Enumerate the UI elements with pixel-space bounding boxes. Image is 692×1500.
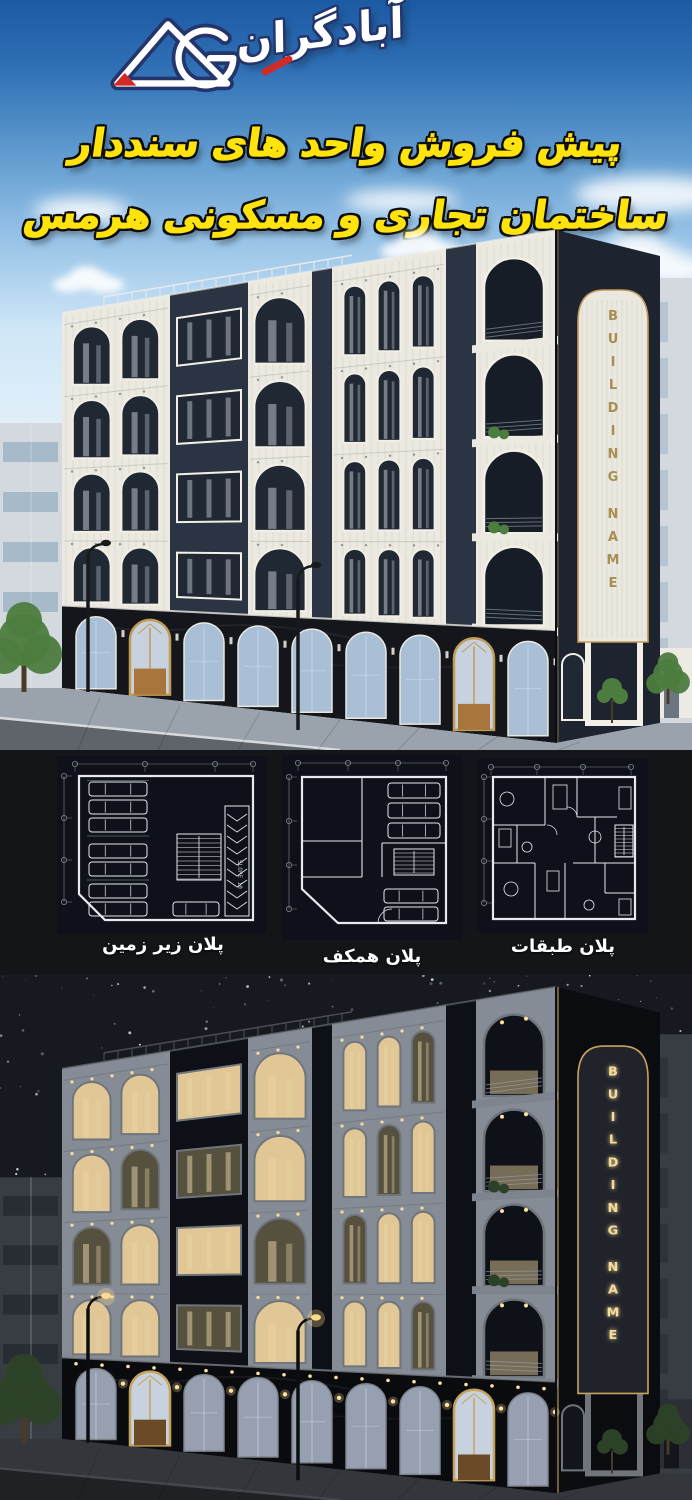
building-right-face: BUILDINGNAME xyxy=(556,987,660,1493)
svg-text:I: I xyxy=(611,355,616,370)
svg-text:L: L xyxy=(609,378,617,393)
night-section: BUILDINGNAME xyxy=(0,975,692,1500)
headline-presale: پیش فروش واحد های سنددار xyxy=(0,121,692,165)
typical-floor-plan-caption: پلان طبقات xyxy=(478,936,648,957)
day-render: BUILDINGNAME xyxy=(0,218,692,750)
ground-floor-plan-drawing xyxy=(282,755,462,940)
svg-text:N: N xyxy=(608,507,619,522)
building-right-face: BUILDINGNAME xyxy=(556,230,660,743)
svg-text:E: E xyxy=(609,576,618,591)
abadgaran-logo: آبادگران xyxy=(78,2,418,98)
svg-text:D: D xyxy=(608,1156,619,1171)
basement-plan-drawing: SLOPE 10 xyxy=(57,756,267,934)
building-name-sign: BUILDINGNAME xyxy=(578,1046,648,1393)
poster-root: آبادگران پیش فروش واحد های سنددار ساختما… xyxy=(0,0,692,1500)
typical-floor-plan-drawing xyxy=(477,759,648,933)
floor-plans-section: SLOPE 10 پلان زیر زمین پلان همکف پلان طب… xyxy=(0,750,692,975)
svg-text:N: N xyxy=(608,1201,619,1216)
svg-text:I: I xyxy=(611,424,616,439)
svg-text:D: D xyxy=(608,401,619,416)
svg-text:L: L xyxy=(609,1133,617,1148)
brand-name: آبادگران xyxy=(236,0,404,67)
basement-plan-caption: پلان زیر زمین xyxy=(58,934,268,955)
svg-text:N: N xyxy=(608,1260,619,1275)
building-name-sign: BUILDINGNAME xyxy=(578,290,648,642)
svg-text:G: G xyxy=(608,1224,619,1239)
svg-text:A: A xyxy=(608,530,618,545)
svg-text:B: B xyxy=(608,1065,618,1080)
svg-text:N: N xyxy=(608,447,619,462)
svg-text:U: U xyxy=(608,332,619,347)
svg-text:I: I xyxy=(611,1110,616,1125)
svg-text:B: B xyxy=(608,309,618,324)
svg-text:SLOPE 10: SLOPE 10 xyxy=(236,860,243,889)
svg-text:U: U xyxy=(608,1087,619,1102)
ground-floor-plan-caption: پلان همکف xyxy=(282,946,462,967)
svg-text:A: A xyxy=(608,1283,618,1298)
svg-text:M: M xyxy=(607,553,620,568)
svg-text:M: M xyxy=(607,1306,620,1321)
svg-text:E: E xyxy=(609,1328,618,1343)
day-section: آبادگران پیش فروش واحد های سنددار ساختما… xyxy=(0,0,692,750)
night-render: BUILDINGNAME xyxy=(0,975,692,1500)
svg-text:I: I xyxy=(611,1178,616,1193)
svg-text:G: G xyxy=(608,470,619,485)
